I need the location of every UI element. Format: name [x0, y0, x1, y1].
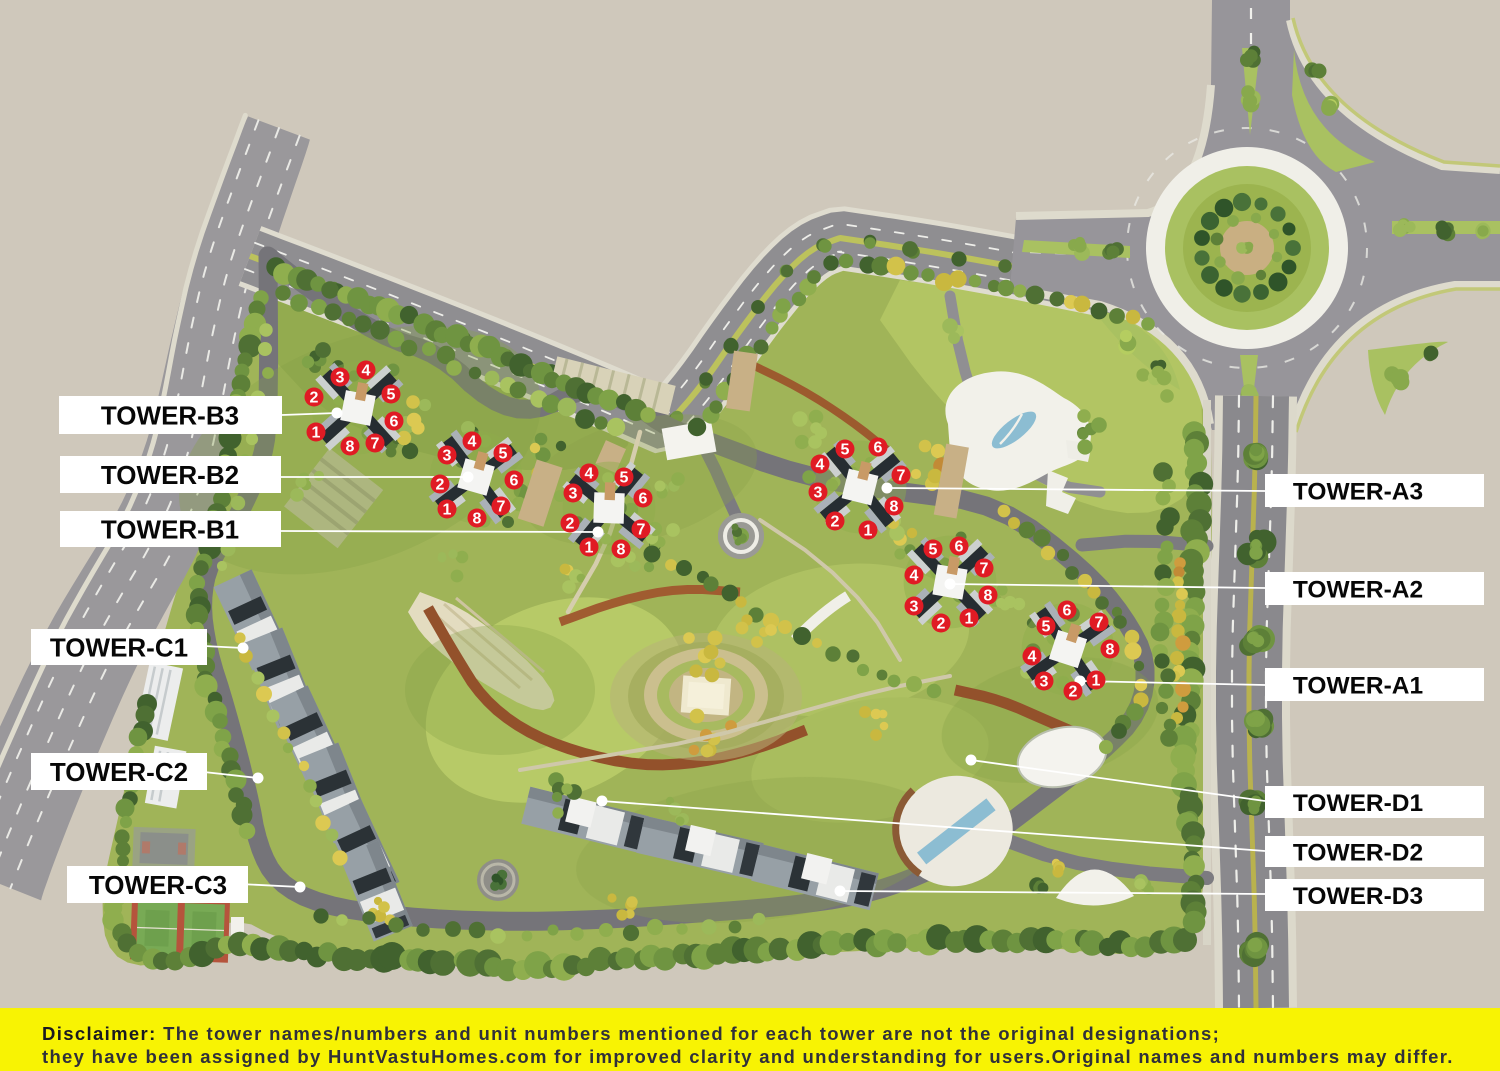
svg-text:7: 7 [1095, 615, 1104, 632]
svg-text:6: 6 [639, 491, 648, 508]
svg-text:4: 4 [816, 457, 825, 474]
svg-text:5: 5 [387, 387, 396, 404]
svg-text:8: 8 [984, 588, 993, 605]
svg-text:3: 3 [443, 448, 452, 465]
svg-text:5: 5 [620, 470, 629, 487]
svg-text:TOWER-B1: TOWER-B1 [101, 514, 239, 544]
svg-text:6: 6 [510, 473, 519, 490]
svg-text:8: 8 [617, 542, 626, 559]
svg-text:5: 5 [499, 446, 508, 463]
svg-text:4: 4 [362, 363, 371, 380]
svg-text:4: 4 [468, 434, 477, 451]
svg-text:3: 3 [336, 370, 345, 387]
svg-text:6: 6 [390, 414, 399, 431]
svg-text:2: 2 [831, 514, 840, 531]
svg-text:1: 1 [1092, 673, 1101, 690]
svg-text:7: 7 [371, 436, 380, 453]
svg-text:TOWER-D3: TOWER-D3 [1293, 883, 1423, 910]
svg-text:5: 5 [929, 542, 938, 559]
svg-text:TOWER-A3: TOWER-A3 [1293, 478, 1423, 505]
svg-text:4: 4 [1028, 649, 1037, 666]
svg-text:7: 7 [497, 499, 506, 516]
svg-text:they have been assigned by Hun: they have been assigned by HuntVastuHome… [42, 1046, 1454, 1067]
svg-text:2: 2 [937, 616, 946, 633]
svg-text:7: 7 [637, 522, 646, 539]
svg-text:6: 6 [955, 539, 964, 556]
svg-text:TOWER-D2: TOWER-D2 [1293, 839, 1423, 866]
svg-text:3: 3 [814, 485, 823, 502]
svg-text:1: 1 [965, 611, 974, 628]
svg-text:8: 8 [346, 439, 355, 456]
svg-text:4: 4 [910, 568, 919, 585]
svg-text:4: 4 [585, 466, 594, 483]
svg-text:5: 5 [1042, 619, 1051, 636]
svg-text:7: 7 [897, 468, 906, 485]
svg-text:3: 3 [569, 486, 578, 503]
svg-text:8: 8 [473, 511, 482, 528]
svg-text:2: 2 [310, 390, 319, 407]
svg-text:5: 5 [841, 442, 850, 459]
svg-text:1: 1 [864, 523, 873, 540]
svg-text:TOWER-A2: TOWER-A2 [1293, 576, 1423, 603]
svg-text:Disclaimer: The tower names/nu: Disclaimer: The tower names/numbers and … [42, 1023, 1220, 1044]
svg-text:1: 1 [312, 425, 321, 442]
svg-text:1: 1 [585, 540, 594, 557]
svg-text:TOWER-B3: TOWER-B3 [101, 400, 239, 430]
svg-text:TOWER-B2: TOWER-B2 [101, 460, 239, 490]
svg-text:TOWER-A1: TOWER-A1 [1293, 672, 1423, 699]
svg-text:2: 2 [566, 516, 575, 533]
svg-text:8: 8 [1106, 642, 1115, 659]
svg-text:3: 3 [1040, 674, 1049, 691]
svg-text:2: 2 [436, 477, 445, 494]
svg-text:TOWER-C2: TOWER-C2 [50, 757, 188, 787]
svg-text:TOWER-D1: TOWER-D1 [1293, 790, 1423, 817]
svg-text:3: 3 [910, 599, 919, 616]
svg-text:1: 1 [443, 502, 452, 519]
svg-text:TOWER-C3: TOWER-C3 [89, 870, 227, 900]
svg-text:6: 6 [1063, 603, 1072, 620]
svg-text:6: 6 [874, 440, 883, 457]
svg-text:8: 8 [890, 499, 899, 516]
svg-text:TOWER-C1: TOWER-C1 [50, 632, 188, 662]
svg-text:2: 2 [1069, 684, 1078, 701]
svg-text:7: 7 [980, 561, 989, 578]
